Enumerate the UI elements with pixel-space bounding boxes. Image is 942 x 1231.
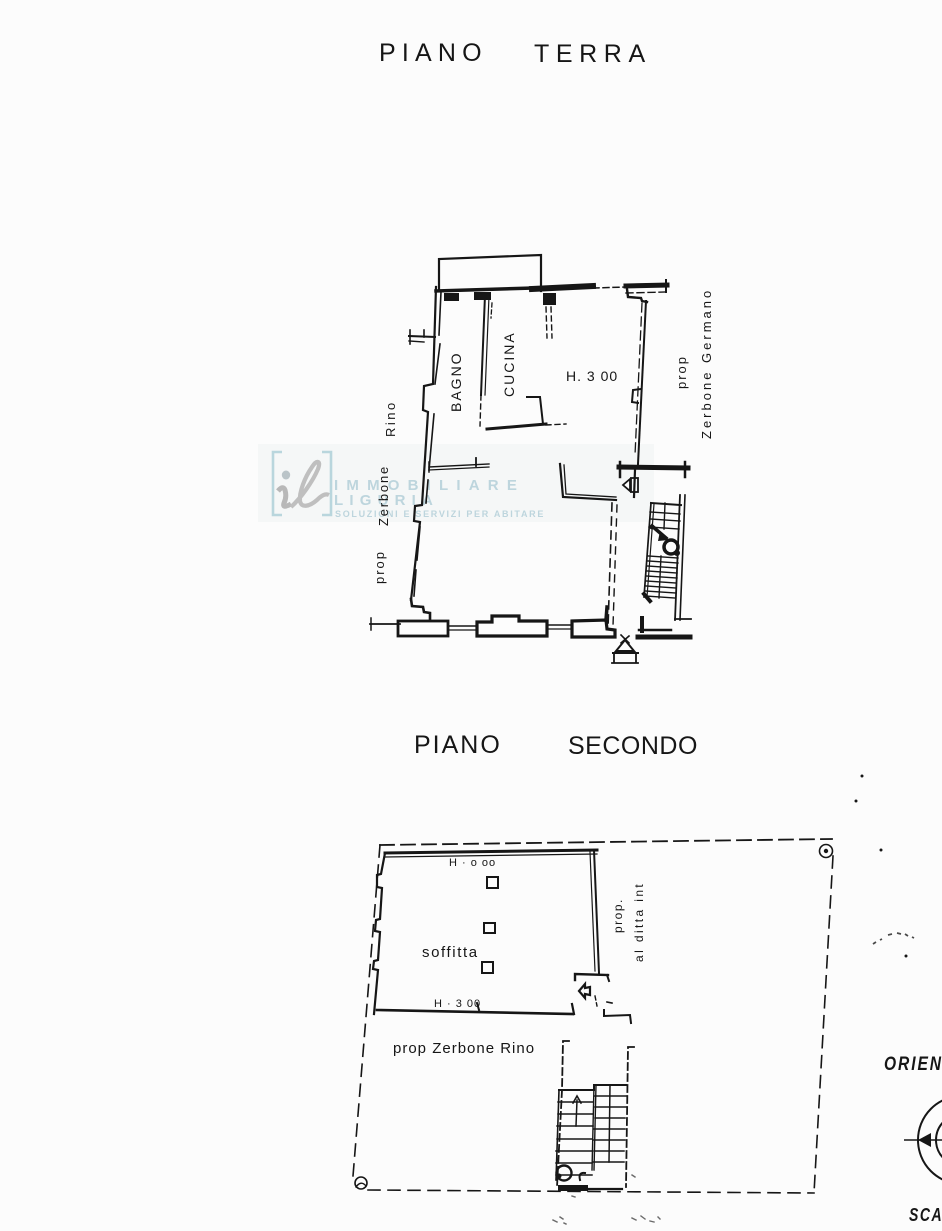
svg-text:ORIEN: ORIEN (884, 1052, 942, 1074)
svg-text:Zerbone Germano: Zerbone Germano (699, 288, 714, 439)
svg-text:H · o oo: H · o oo (449, 857, 496, 869)
svg-text:prop Zerbone Rino: prop Zerbone Rino (393, 1040, 535, 1057)
svg-text:PIANO: PIANO (379, 39, 488, 67)
svg-text:BAGNO: BAGNO (448, 351, 464, 412)
svg-text:Zerbone: Zerbone (376, 465, 391, 526)
svg-text:al ditta int: al ditta int (632, 882, 646, 962)
svg-text:H. 3 00: H. 3 00 (566, 368, 618, 384)
svg-text:Rino: Rino (383, 400, 398, 437)
svg-text:TERRA: TERRA (534, 40, 652, 68)
svg-text:prop: prop (674, 355, 689, 389)
svg-text:PIANO: PIANO (414, 731, 502, 759)
svg-text:H · 3 00: H · 3 00 (434, 998, 481, 1010)
svg-text:SECONDO: SECONDO (568, 732, 698, 760)
svg-text:prop: prop (372, 550, 387, 584)
svg-text:SCA: SCA (909, 1205, 942, 1225)
svg-text:prop.: prop. (611, 898, 625, 933)
svg-text:CUCINA: CUCINA (501, 331, 517, 397)
svg-text:SOLUZIONI E SERVIZI PER ABITAR: SOLUZIONI E SERVIZI PER ABITARE (335, 509, 545, 519)
svg-text:soffitta: soffitta (422, 944, 479, 961)
